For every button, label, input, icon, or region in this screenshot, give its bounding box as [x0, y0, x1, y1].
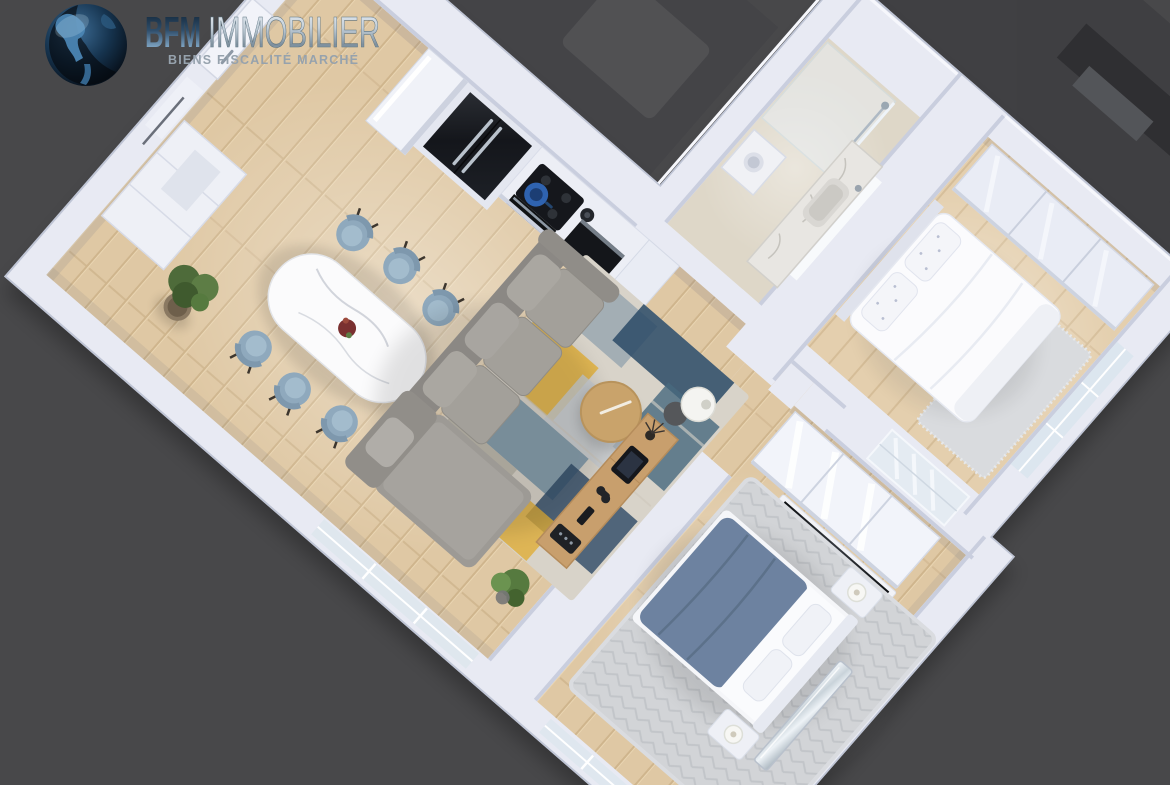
logo-brand: BFM — [145, 8, 201, 57]
screenshot-root: BFM IMMOBILIER BIENS FISCALITÉ MARCHÉ — [0, 0, 1170, 785]
logo-tagline: BIENS FISCALITÉ MARCHÉ — [168, 52, 358, 67]
floor-plan-render: BFM IMMOBILIER BIENS FISCALITÉ MARCHÉ — [0, 0, 1170, 785]
logo-name: IMMOBILIER — [208, 8, 380, 57]
globe-icon — [45, 4, 127, 86]
